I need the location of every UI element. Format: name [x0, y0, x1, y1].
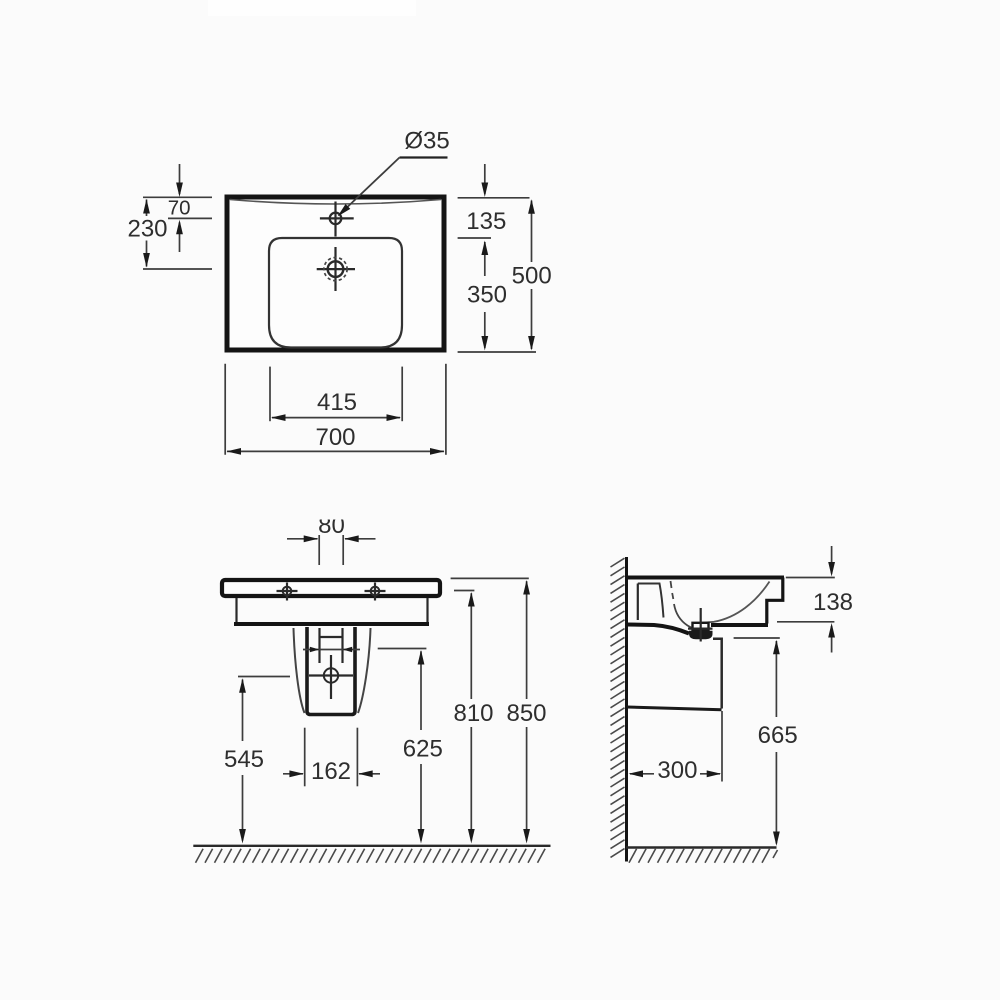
svg-text:70: 70 [168, 197, 191, 220]
svg-text:162: 162 [311, 758, 351, 785]
svg-text:810: 810 [453, 700, 493, 727]
svg-text:625: 625 [403, 735, 443, 762]
svg-text:300: 300 [657, 757, 697, 784]
svg-text:135: 135 [466, 208, 506, 235]
svg-text:350: 350 [467, 281, 507, 308]
svg-text:700: 700 [315, 424, 355, 451]
svg-text:230: 230 [127, 216, 167, 243]
svg-text:415: 415 [317, 389, 357, 416]
svg-text:500: 500 [512, 262, 552, 289]
svg-text:138: 138 [813, 589, 853, 616]
svg-text:850: 850 [506, 700, 546, 727]
svg-text:Ø35: Ø35 [404, 128, 449, 155]
svg-text:545: 545 [224, 746, 264, 773]
svg-text:665: 665 [758, 722, 798, 749]
